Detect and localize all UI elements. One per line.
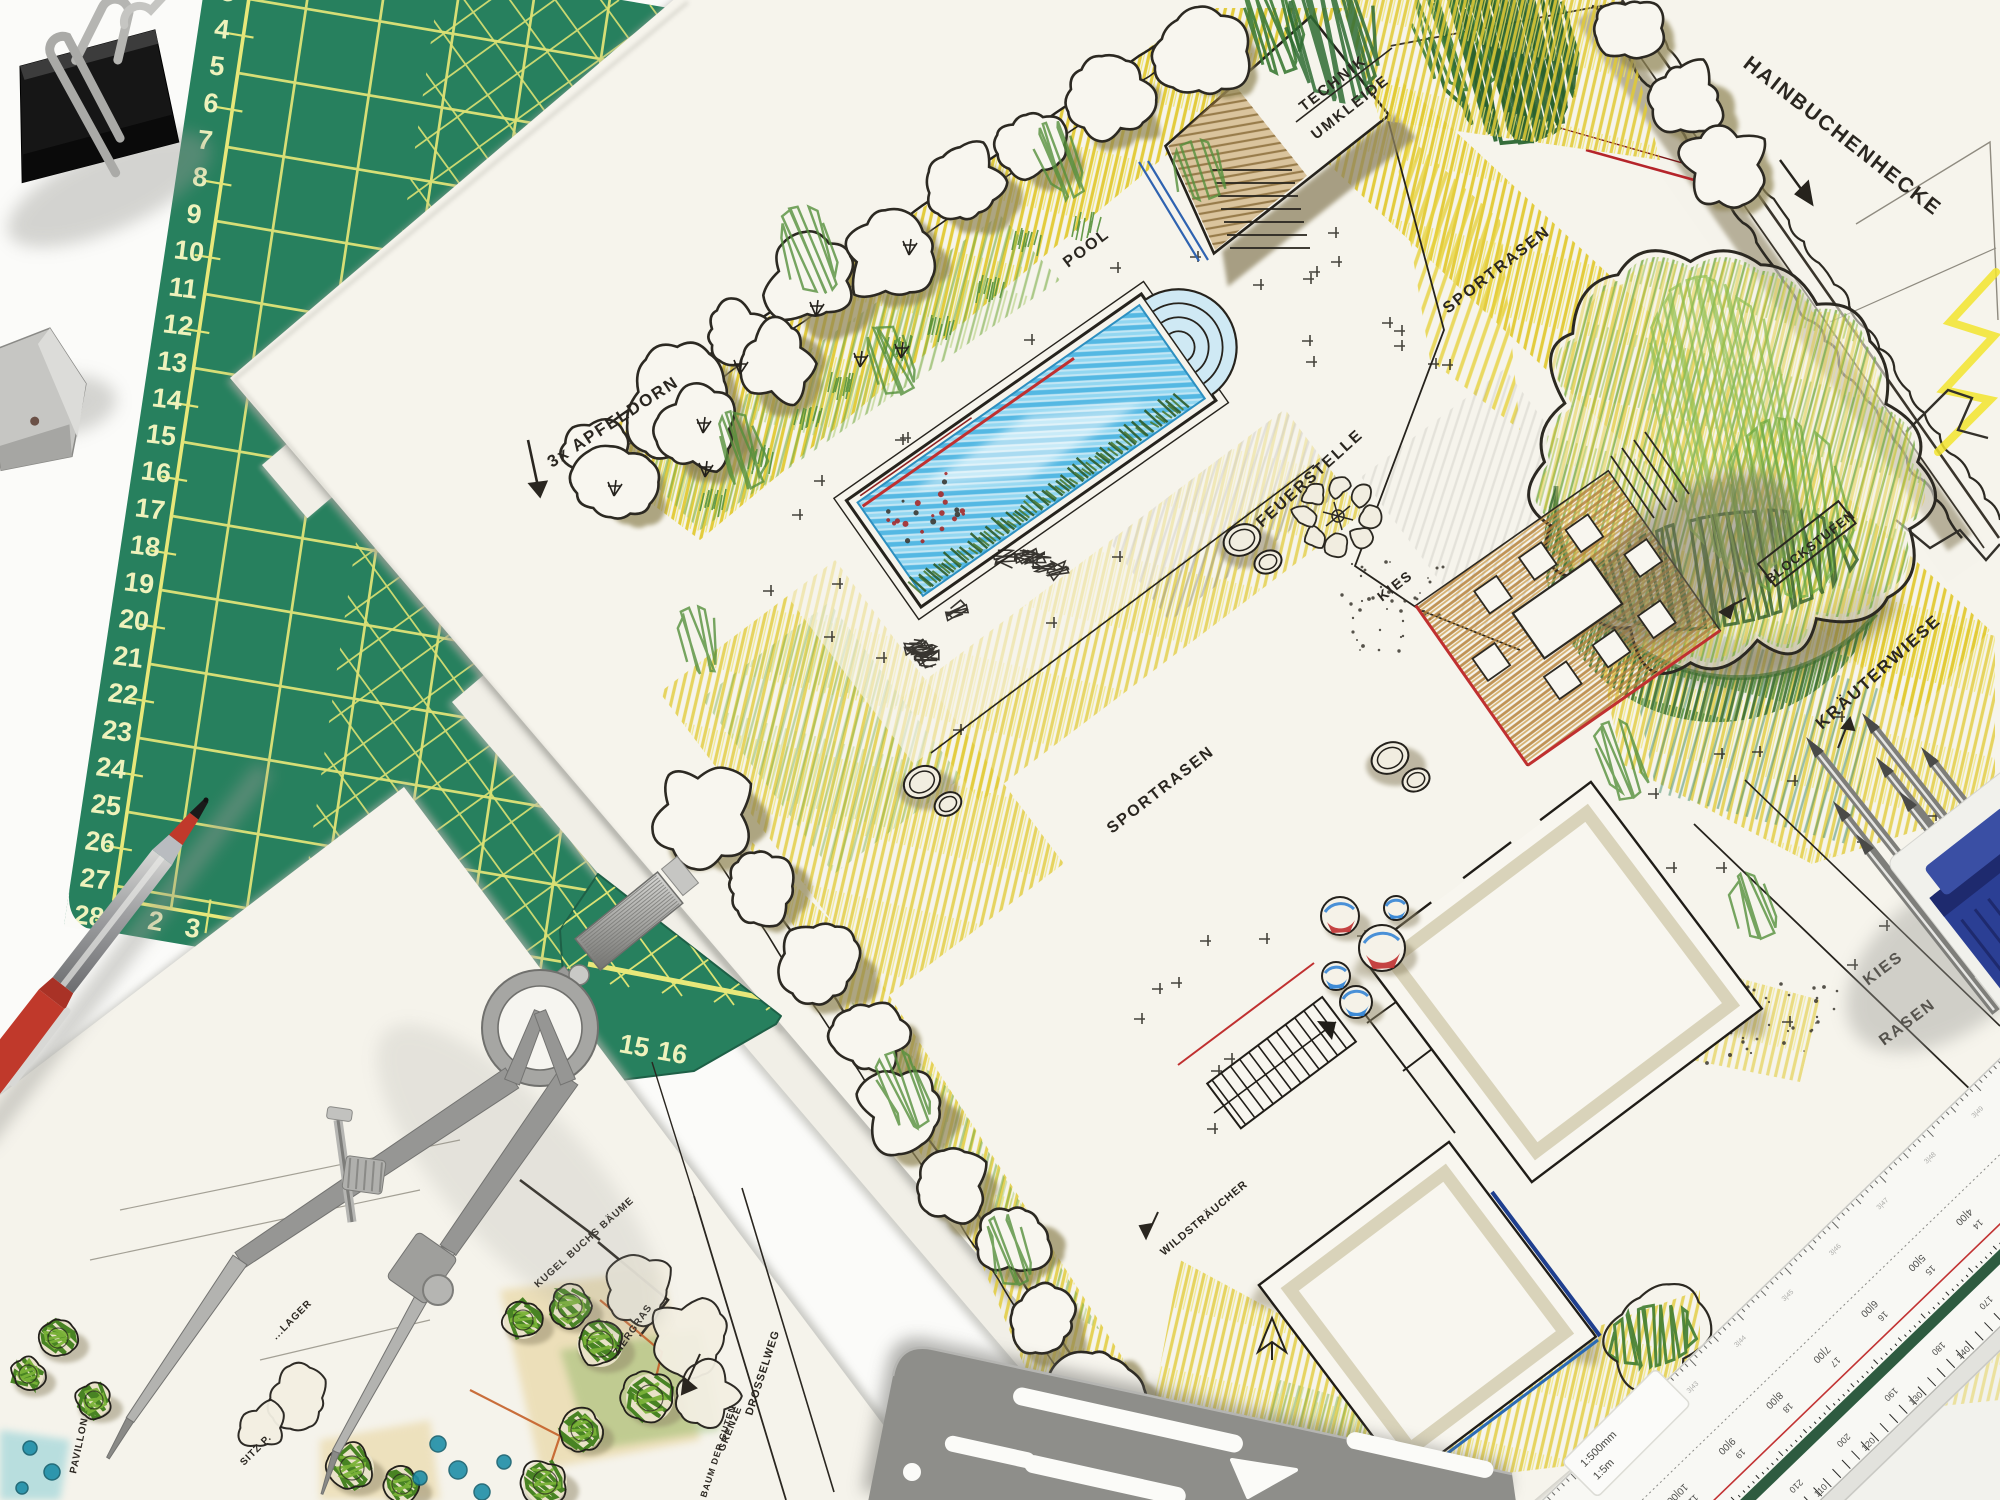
svg-text:12: 12: [161, 308, 194, 341]
svg-text:17: 17: [133, 492, 166, 525]
svg-text:24: 24: [94, 751, 127, 784]
svg-text:16: 16: [655, 1035, 690, 1070]
svg-text:18: 18: [128, 529, 161, 562]
svg-text:16: 16: [139, 455, 172, 488]
svg-text:19: 19: [122, 566, 155, 599]
svg-text:15: 15: [617, 1028, 652, 1063]
svg-text:22: 22: [106, 677, 139, 710]
svg-text:14: 14: [150, 382, 183, 415]
svg-text:20: 20: [117, 603, 150, 636]
svg-text:15: 15: [144, 418, 177, 451]
svg-text:21: 21: [111, 640, 144, 673]
svg-text:26: 26: [83, 825, 116, 858]
svg-text:10: 10: [172, 234, 205, 267]
svg-text:11: 11: [167, 271, 199, 304]
svg-text:25: 25: [89, 788, 122, 821]
svg-text:27: 27: [78, 862, 111, 895]
svg-text:23: 23: [100, 714, 133, 747]
svg-text:13: 13: [155, 345, 188, 378]
